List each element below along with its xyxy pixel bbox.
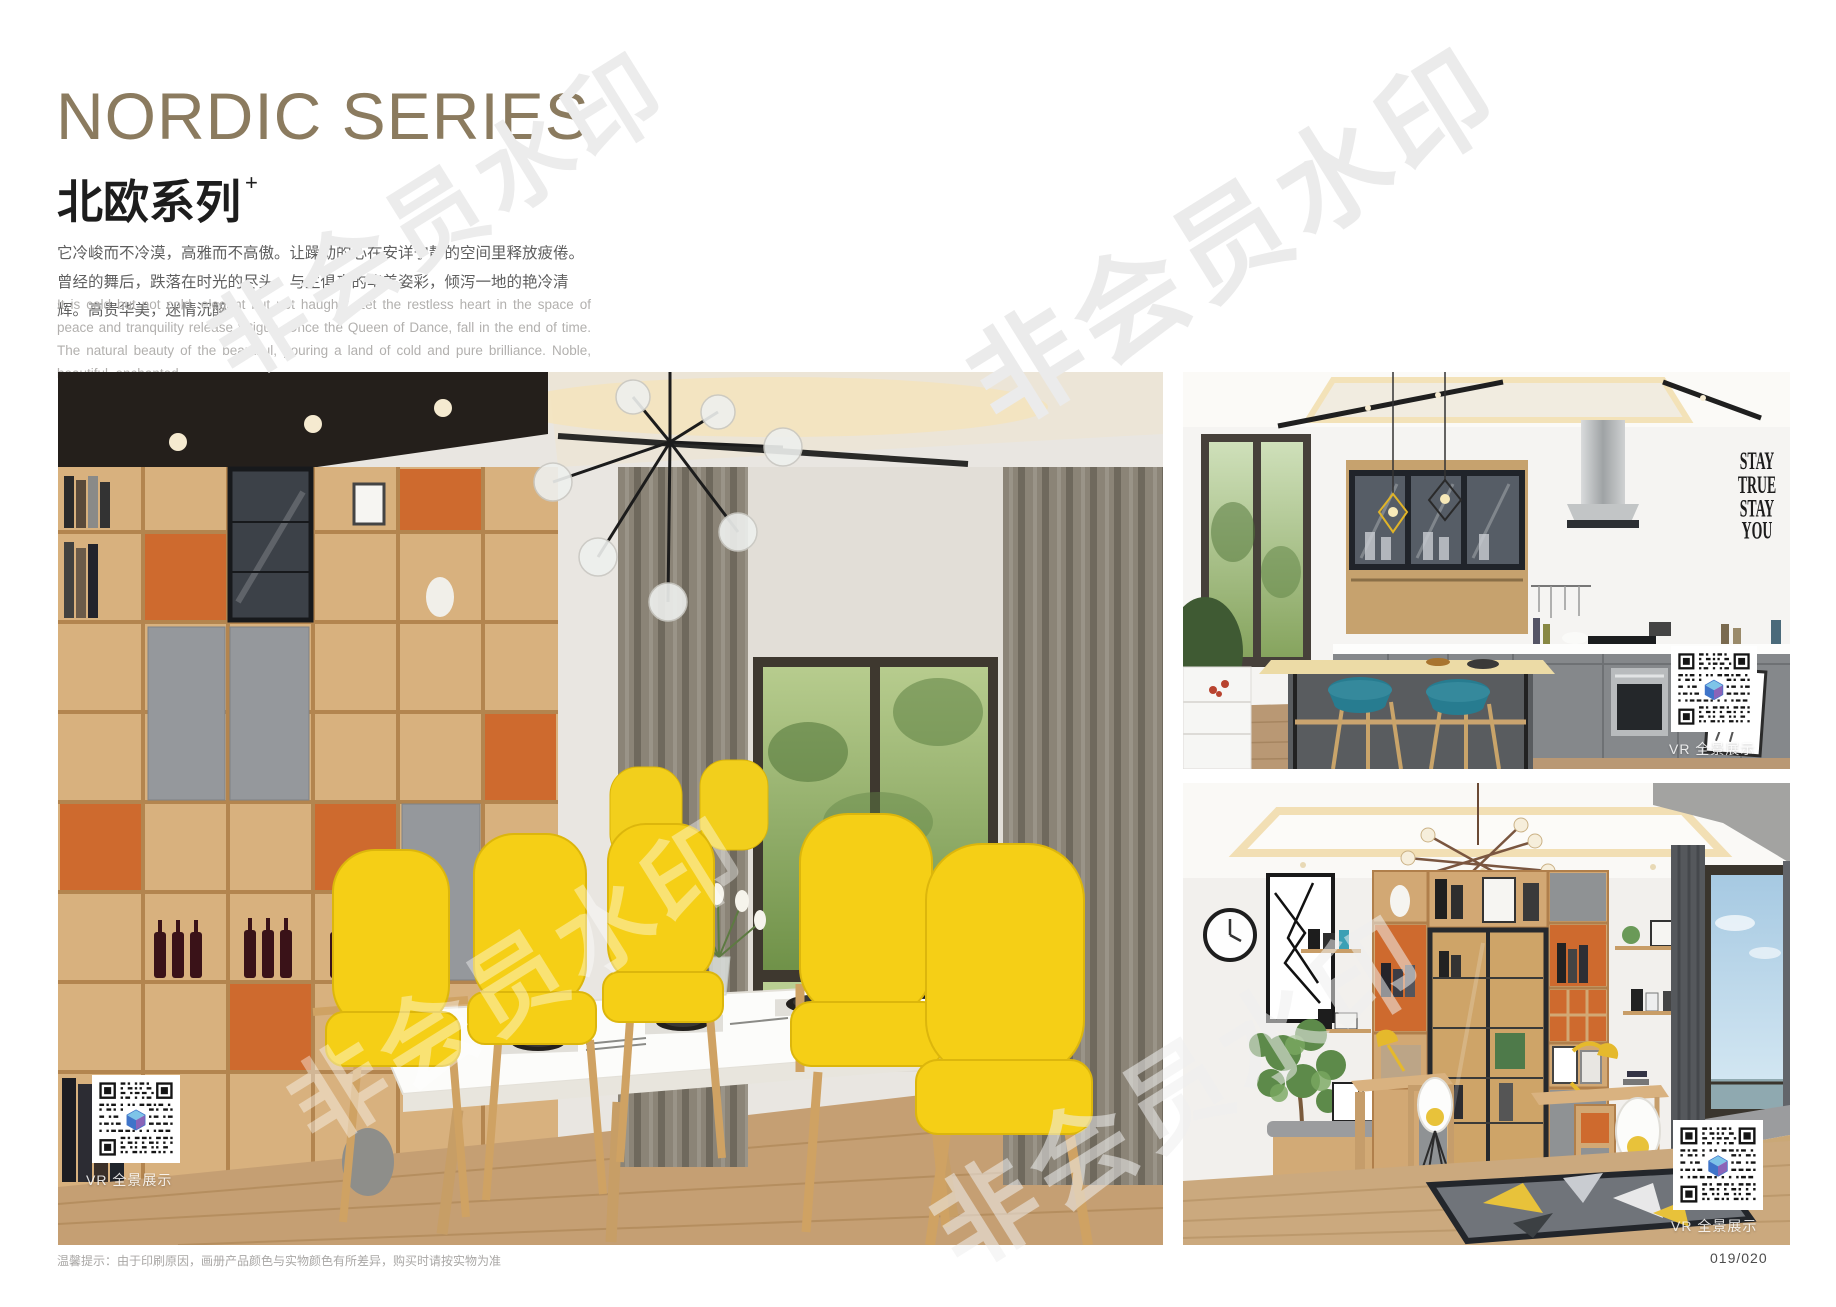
vr-label-study: VR 全景展示 [1671, 1216, 1757, 1236]
wall-art-stay-true: STAY TRUE STAY YOU [1736, 452, 1778, 546]
picture-frame [354, 484, 384, 524]
vr-qr-code-kitchen [1671, 646, 1757, 732]
sideboard [1183, 667, 1251, 769]
page-number: 019/020 [1710, 1250, 1768, 1266]
glass-display-cabinet [230, 469, 311, 620]
island-bar [1259, 658, 1555, 769]
footer-note: 温馨提示：由于印刷原因，画册产品颜色与实物颜色有所差异，购买时请按实物为准 [57, 1252, 501, 1269]
photo-dining-room: VR 全景展示 [58, 372, 1163, 1245]
series-title-zh: 北欧系列+ [57, 166, 258, 232]
oven [1611, 668, 1668, 736]
vase [426, 577, 454, 617]
catalog-page: NORDIC SERIES 北欧系列+ 它冷峻而不冷漠，高雅而不高傲。让躁动的心… [0, 0, 1836, 1307]
series-title-en: NORDIC SERIES [56, 78, 590, 154]
title-superscript: + [245, 170, 258, 195]
vr-label-kitchen: VR 全景展示 [1669, 739, 1755, 759]
orange-cubbies [1550, 990, 1606, 1041]
study-window [1701, 865, 1790, 1121]
series-title-zh-text: 北欧系列 [57, 176, 241, 228]
glass-cabinet [1430, 930, 1546, 1171]
vr-qr-code-dining [92, 1075, 180, 1163]
kitchen-ceiling [1183, 372, 1790, 427]
wall-clock [1205, 910, 1255, 960]
vr-qr-code-study [1673, 1120, 1763, 1210]
photo-study: VR 全景展示 [1183, 783, 1790, 1245]
vr-label-dining: VR 全景展示 [86, 1170, 172, 1190]
curtain-right-edge [1783, 861, 1790, 1123]
photo-kitchen: STAY TRUE STAY YOU VR 全景展示 [1183, 372, 1790, 769]
